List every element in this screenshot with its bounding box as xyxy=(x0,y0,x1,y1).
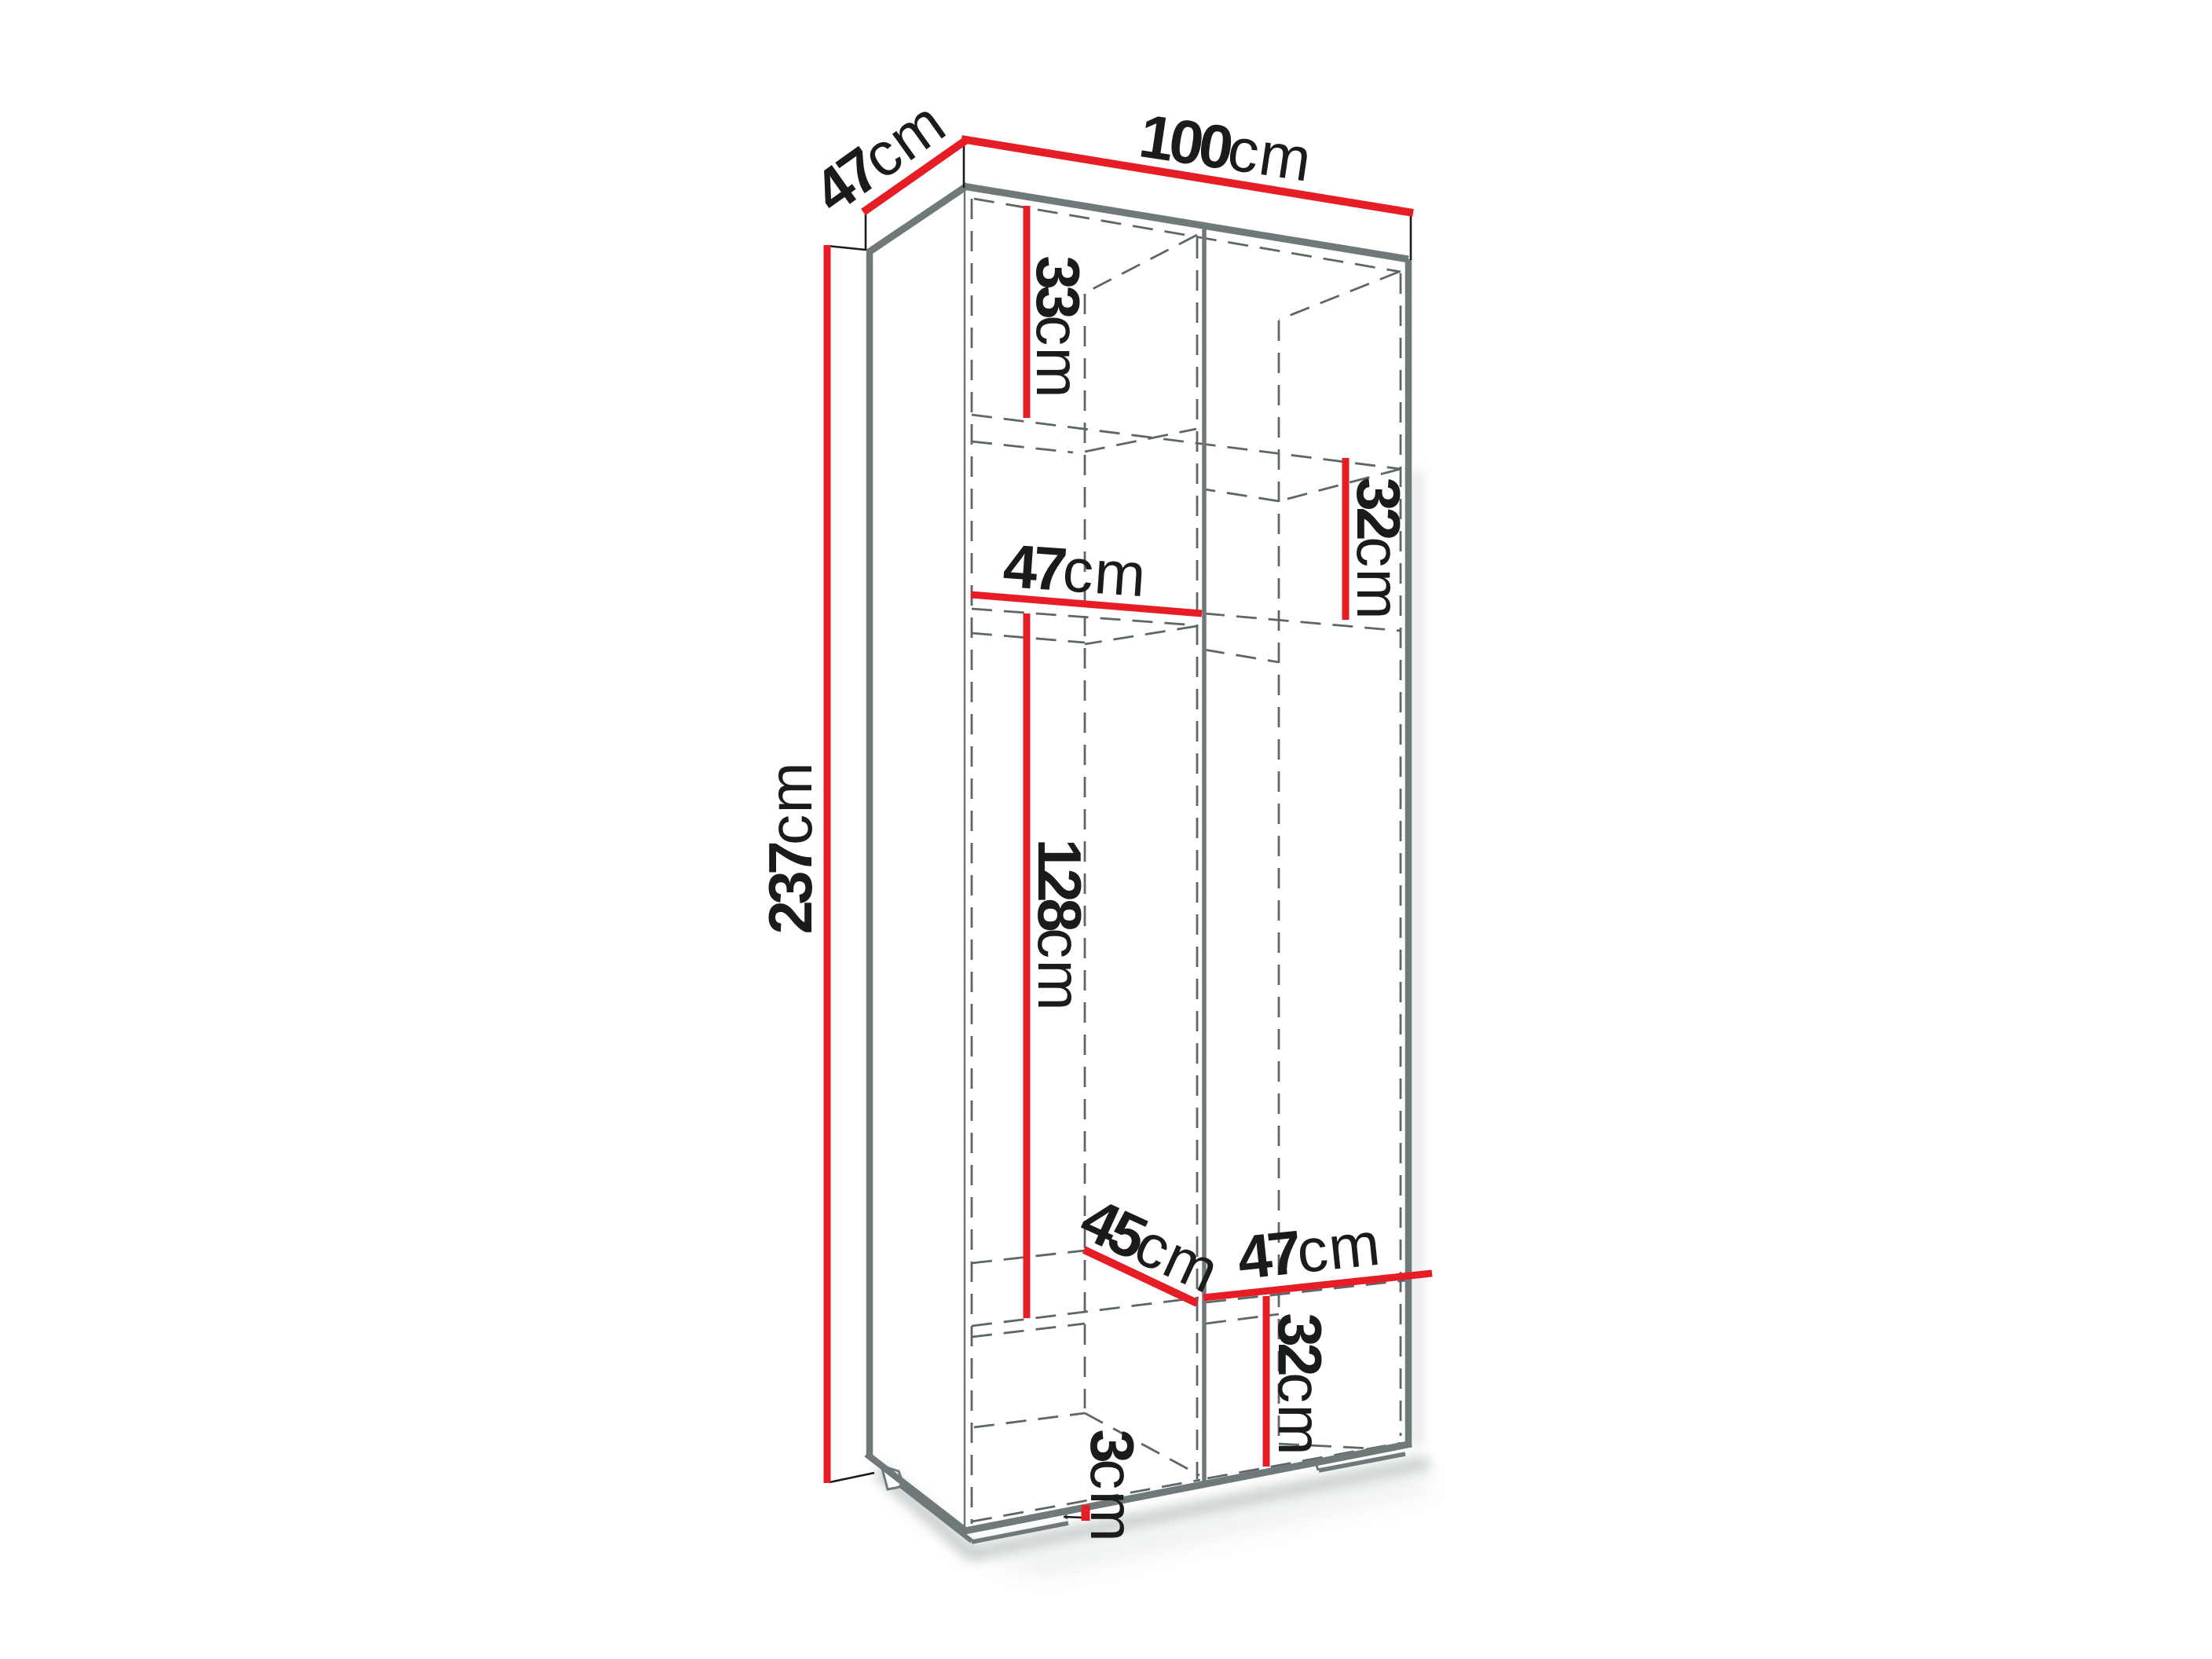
svg-text:33: 33 xyxy=(1024,255,1093,317)
svg-text:cm: cm xyxy=(1060,535,1149,610)
svg-text:32: 32 xyxy=(1265,1313,1335,1375)
svg-text:cm: cm xyxy=(1265,1372,1335,1456)
svg-text:cm: cm xyxy=(1025,928,1094,1012)
svg-text:cm: cm xyxy=(1078,1459,1147,1543)
svg-text:32: 32 xyxy=(1344,477,1413,539)
svg-text:47: 47 xyxy=(1001,531,1067,604)
svg-text:237: 237 xyxy=(756,844,825,935)
svg-text:3: 3 xyxy=(1078,1429,1147,1461)
svg-text:cm: cm xyxy=(756,761,825,845)
svg-text:cm: cm xyxy=(1344,537,1413,621)
svg-text:cm: cm xyxy=(1294,1209,1385,1287)
svg-text:cm: cm xyxy=(1024,315,1093,399)
svg-text:100: 100 xyxy=(1135,101,1236,182)
svg-text:47: 47 xyxy=(1234,1218,1302,1293)
svg-text:128: 128 xyxy=(1025,838,1094,930)
svg-text:cm: cm xyxy=(1224,114,1317,195)
